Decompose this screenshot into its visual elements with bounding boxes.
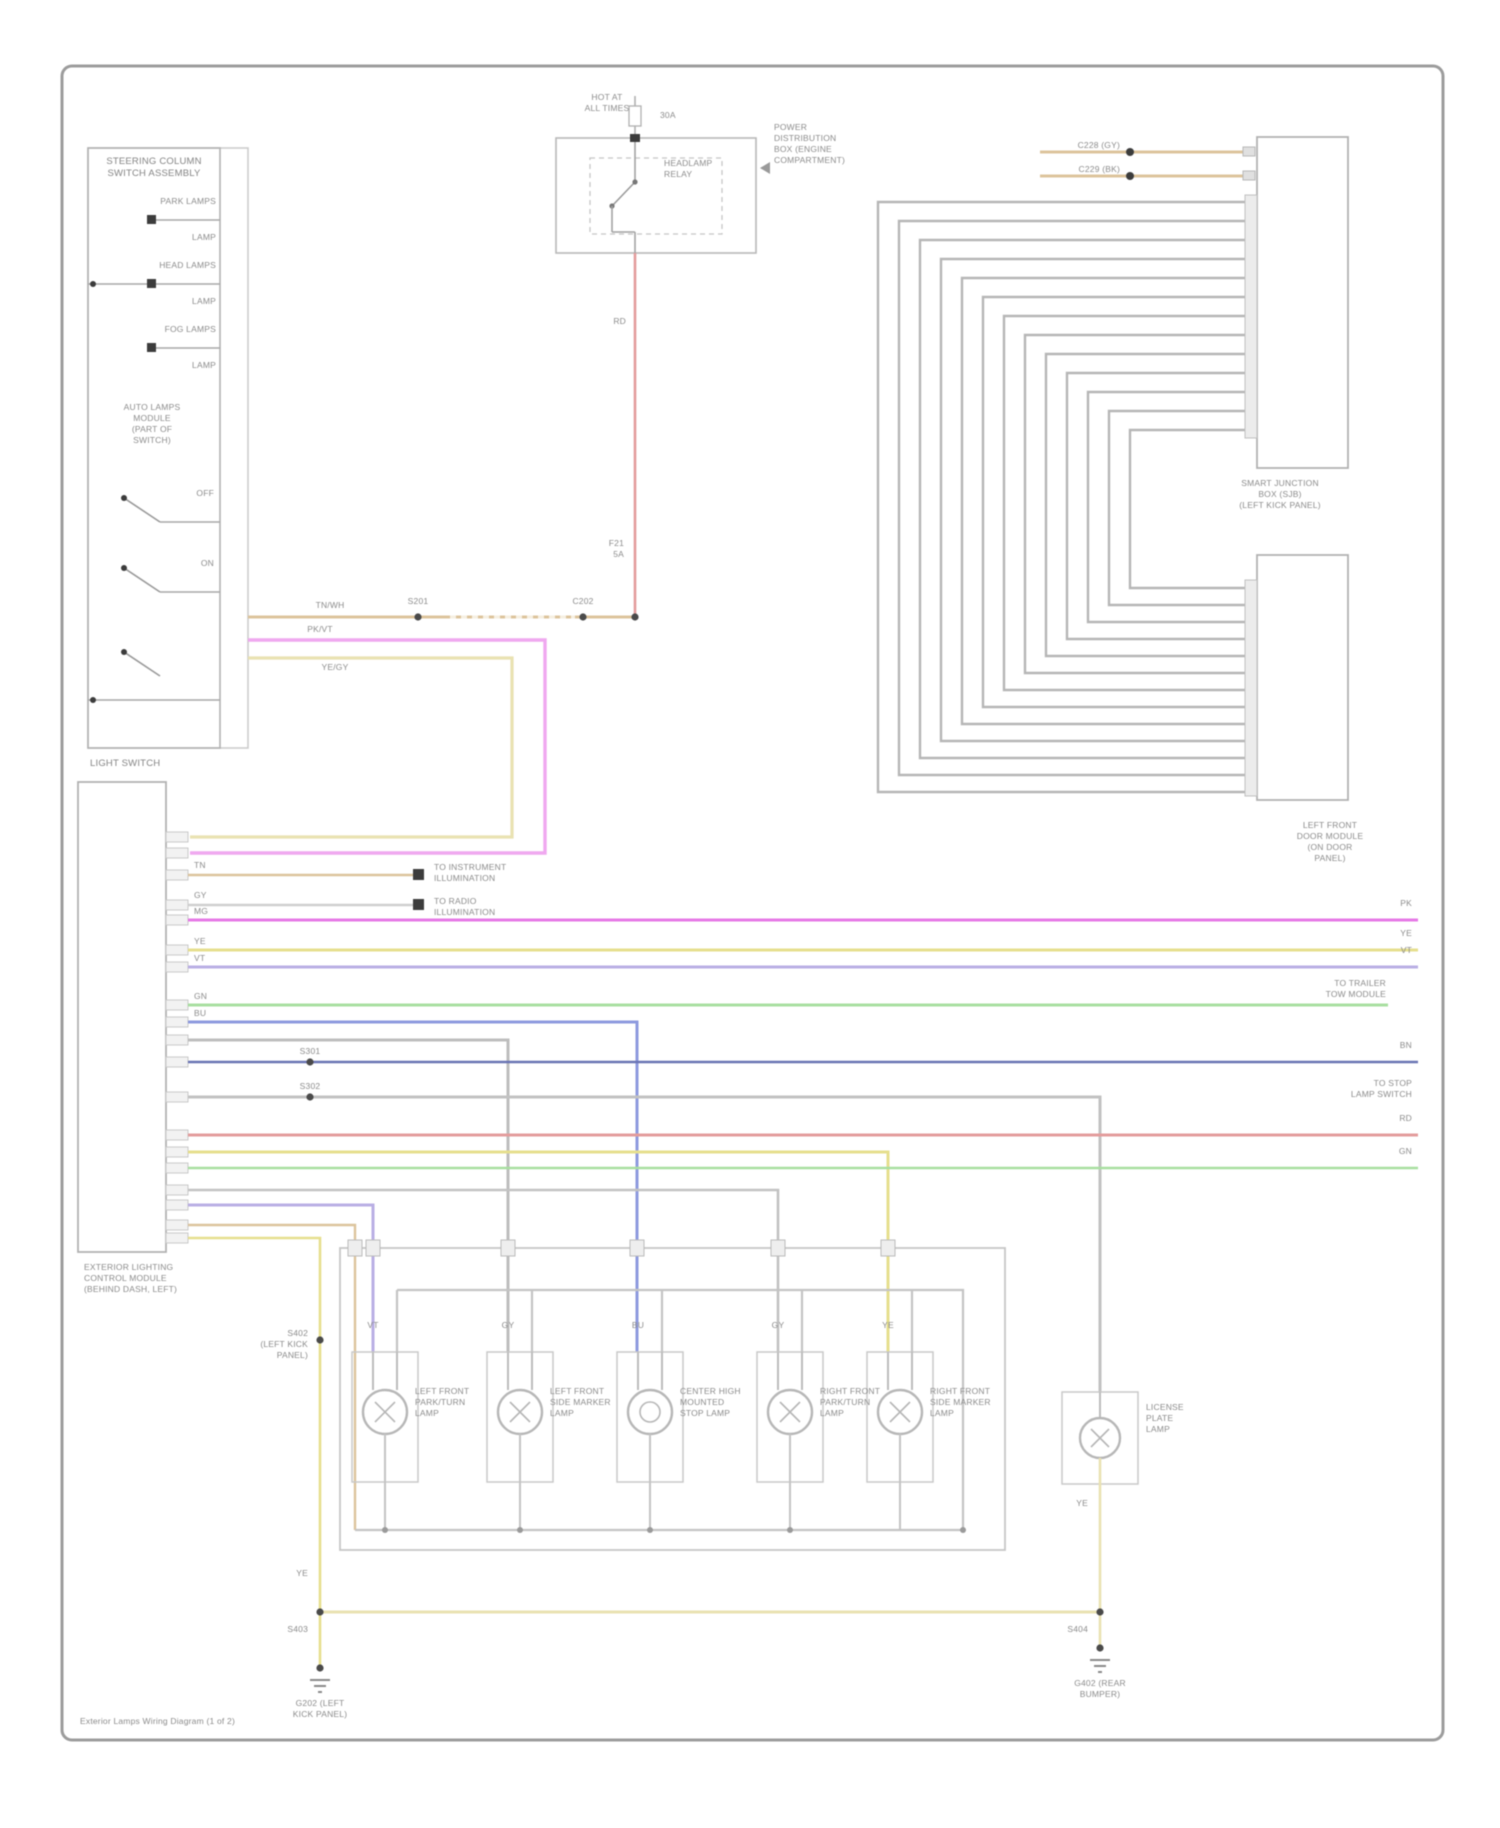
module-code-vt: VT — [194, 953, 205, 964]
relay-hot-label: HOT AT ALL TIMES — [585, 92, 630, 114]
switch-row3-label: FOG LAMPS — [165, 324, 216, 335]
feed-code-a: VT — [367, 1320, 378, 1331]
feed-code-e: YE — [882, 1320, 894, 1331]
ground-left-code: YE — [296, 1568, 308, 1579]
edge-code-gn: GN — [1399, 1146, 1412, 1157]
cream-loop-code: YE/GY — [322, 662, 349, 673]
ground-right-code: YE — [1076, 1498, 1088, 1509]
module-splice2-label: S302 — [300, 1081, 321, 1092]
feed-code-d: GY — [772, 1320, 785, 1331]
page-caption: Exterior Lamps Wiring Diagram (1 of 2) — [80, 1716, 235, 1727]
junction-box1-label: SMART JUNCTION BOX (SJB) (LEFT KICK PANE… — [1239, 478, 1321, 511]
lamp-e-label: RIGHT FRONT SIDE MARKER LAMP — [930, 1386, 991, 1419]
switch-bottom-label: LIGHT SWITCH — [90, 758, 160, 770]
relay-fuse-label: F21 5A — [609, 538, 624, 560]
ground-right-label: G402 (REAR BUMPER) — [1074, 1678, 1126, 1700]
feed-code-c: BU — [632, 1320, 644, 1331]
wiring-diagram-canvas — [0, 0, 1500, 1828]
ground-left-label: G202 (LEFT KICK PANEL) — [293, 1698, 347, 1720]
module-code-gn: GN — [194, 991, 207, 1002]
edge-stop-label: TO STOP LAMP SWITCH — [1351, 1078, 1412, 1100]
relay-wire-code: RD — [613, 316, 626, 327]
lamp-r-label: LICENSE PLATE LAMP — [1146, 1402, 1184, 1435]
edge-code-vt: VT — [1401, 945, 1412, 956]
module-code-bu: BU — [194, 1008, 206, 1019]
switch-row2-label: HEAD LAMPS — [159, 260, 216, 271]
junction-box2-label: LEFT FRONT DOOR MODULE (ON DOOR PANEL) — [1297, 820, 1363, 864]
lamp-d-label: RIGHT FRONT PARK/TURN LAMP — [820, 1386, 880, 1419]
edge-code-ye: YE — [1400, 928, 1412, 939]
module-code-gy: GY — [194, 890, 207, 901]
lamp-a-label: LEFT FRONT PARK/TURN LAMP — [415, 1386, 469, 1419]
inline-connector1-label: TO INSTRUMENT ILLUMINATION — [434, 862, 506, 884]
module-code-mg: MG — [194, 906, 208, 917]
switch-block-label: AUTO LAMPS MODULE (PART OF SWITCH) — [124, 402, 181, 446]
feed-code-b: GY — [502, 1320, 515, 1331]
switch-row2-sub: LAMP — [192, 296, 216, 307]
switch-pos1: OFF — [196, 488, 214, 499]
switch-row1-label: PARK LAMPS — [160, 196, 216, 207]
relay-location-label: POWER DISTRIBUTION BOX (ENGINE COMPARTME… — [774, 122, 845, 166]
module-code-tn: TN — [194, 860, 206, 871]
edge-code-bn: BN — [1400, 1040, 1412, 1051]
switch-row3-sub: LAMP — [192, 360, 216, 371]
edge-trailer-label: TO TRAILER TOW MODULE — [1326, 978, 1386, 1000]
lamp-b-label: LEFT FRONT SIDE MARKER LAMP — [550, 1386, 611, 1419]
switch-pos2: ON — [201, 558, 214, 569]
inline-connector2-label: TO RADIO ILLUMINATION — [434, 896, 495, 918]
switch-row1-sub: LAMP — [192, 232, 216, 243]
lamp-c-label: CENTER HIGH MOUNTED STOP LAMP — [680, 1386, 741, 1419]
relay-amp-label: 30A — [660, 110, 676, 121]
relay-name-label: HEADLAMP RELAY — [664, 158, 712, 180]
wiring-diagram-page: STEERING COLUMN SWITCH ASSEMBLY PARK LAM… — [0, 0, 1500, 1828]
ground-left-splice: S403 — [287, 1624, 308, 1635]
coil-connector1-label: C228 (GY) — [1078, 140, 1120, 151]
tan-splice1-label: S201 — [408, 596, 429, 607]
module-label: EXTERIOR LIGHTING CONTROL MODULE (BEHIND… — [84, 1262, 177, 1295]
module-splice1-label: S301 — [300, 1046, 321, 1057]
edge-code-pk: PK — [1400, 898, 1412, 909]
lamp-splice-label: S402 (LEFT KICK PANEL) — [260, 1328, 308, 1361]
module-code-ye: YE — [194, 936, 206, 947]
edge-code-rd: RD — [1399, 1113, 1412, 1124]
coil-connector2-label: C229 (BK) — [1079, 164, 1120, 175]
pink-loop-code: PK/VT — [307, 624, 333, 635]
tan-wire-code: TN/WH — [316, 600, 345, 611]
ground-right-splice: S404 — [1067, 1624, 1088, 1635]
tan-splice2-label: C202 — [572, 596, 593, 607]
switch-title: STEERING COLUMN SWITCH ASSEMBLY — [106, 156, 201, 180]
